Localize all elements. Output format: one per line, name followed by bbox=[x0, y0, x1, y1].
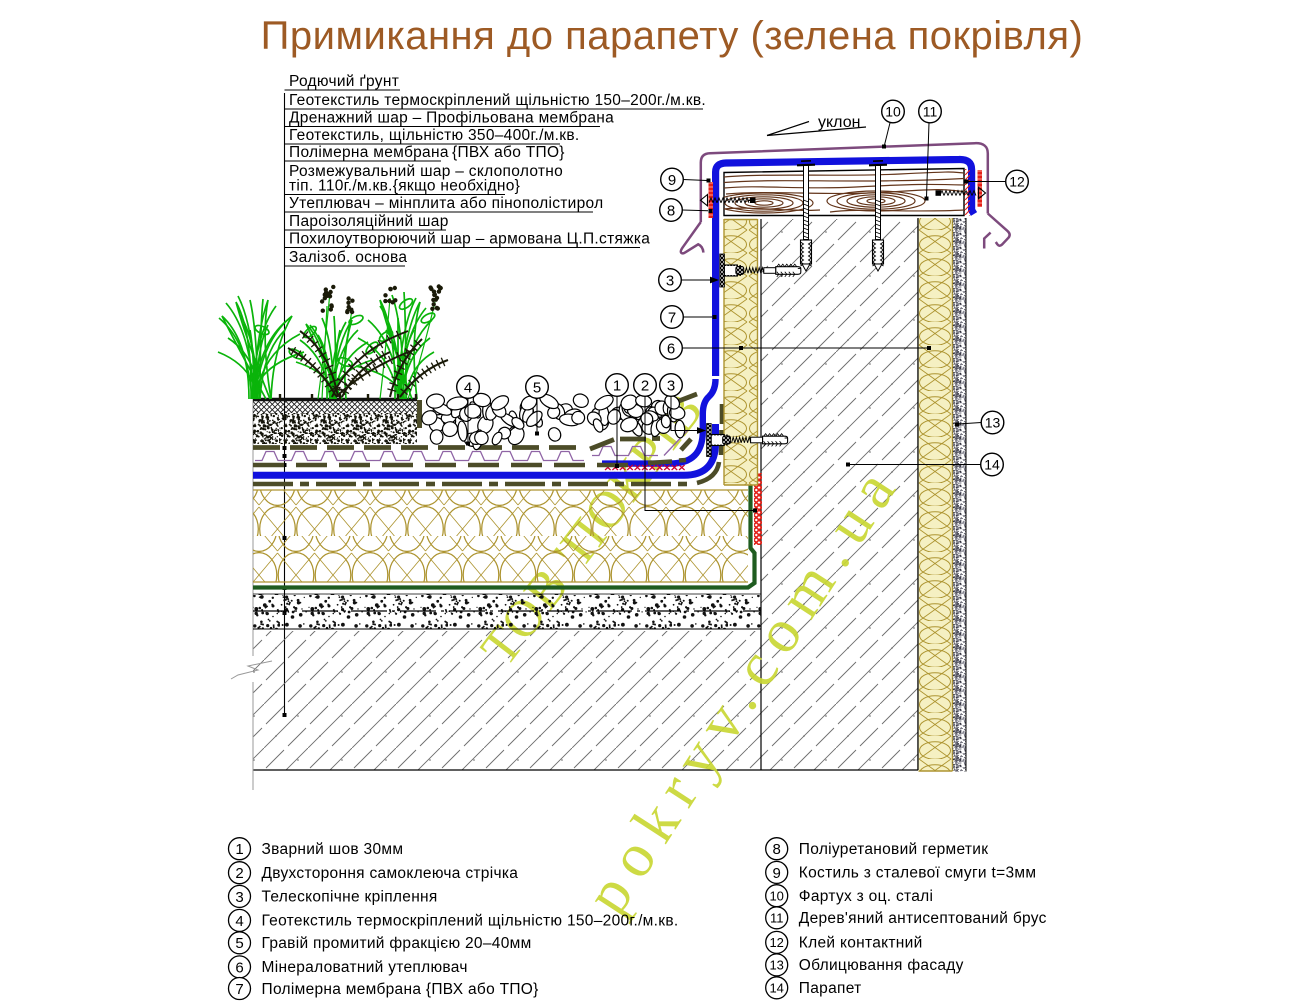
svg-text:11: 11 bbox=[923, 104, 938, 120]
svg-text:Парапет: Парапет bbox=[799, 980, 862, 997]
svg-text:1: 1 bbox=[613, 377, 621, 394]
svg-text:8: 8 bbox=[667, 202, 675, 219]
svg-text:{ПВХ або ТПО}: {ПВХ або ТПО} bbox=[452, 144, 565, 161]
svg-text:7: 7 bbox=[235, 981, 243, 998]
svg-text:6: 6 bbox=[667, 340, 675, 357]
svg-text:Геотекстиль термоскріплений щі: Геотекстиль термоскріплений щільністю 15… bbox=[262, 913, 679, 930]
svg-text:10: 10 bbox=[885, 104, 901, 120]
svg-text:3: 3 bbox=[235, 889, 243, 906]
svg-text:8: 8 bbox=[773, 841, 781, 858]
svg-text:Пароізоляційний шар: Пароізоляційний шар bbox=[289, 213, 449, 230]
svg-text:4: 4 bbox=[235, 913, 243, 930]
svg-text:Геотекстиль термоскріплений щі: Геотекстиль термоскріплений щільністю 15… bbox=[289, 92, 706, 109]
svg-text:2: 2 bbox=[641, 377, 649, 394]
svg-text:Дренажний шар – Профільована м: Дренажний шар – Профільована мембрана bbox=[289, 110, 614, 127]
svg-text:14: 14 bbox=[984, 457, 1000, 473]
svg-text:11: 11 bbox=[770, 911, 784, 926]
svg-text:9: 9 bbox=[668, 172, 676, 189]
svg-text:12: 12 bbox=[1009, 174, 1025, 190]
svg-text:13: 13 bbox=[985, 415, 1001, 431]
svg-text:9: 9 bbox=[773, 865, 781, 882]
svg-text:2: 2 bbox=[235, 865, 243, 882]
svg-text:Примикання до парапету (зелена: Примикання до парапету (зелена покрівля) bbox=[261, 14, 1084, 58]
svg-text:Полімерна мембрана: Полімерна мембрана bbox=[289, 144, 449, 161]
svg-text:14: 14 bbox=[769, 981, 783, 996]
svg-text:3: 3 bbox=[666, 272, 674, 289]
svg-text:Похилоутворюючий шар – армован: Похилоутворюючий шар – армована Ц.П.стяж… bbox=[289, 231, 650, 248]
svg-text:Дерев'яний антисептований брус: Дерев'яний антисептований брус bbox=[799, 910, 1047, 927]
svg-text:Родючий ґрунт: Родючий ґрунт bbox=[289, 73, 399, 90]
svg-text:Полімерна мембрана {ПВХ або ТП: Полімерна мембрана {ПВХ або ТПО} bbox=[262, 981, 539, 998]
svg-text:13: 13 bbox=[769, 958, 783, 973]
svg-text:Фартух з оц. сталі: Фартух з оц. сталі bbox=[799, 888, 933, 905]
svg-text:7: 7 bbox=[668, 309, 676, 326]
svg-text:4: 4 bbox=[464, 379, 472, 396]
svg-text:Гравій промитий фракцією 20–40: Гравій промитий фракцією 20–40мм bbox=[262, 935, 532, 952]
svg-text:12: 12 bbox=[769, 935, 783, 950]
svg-text:6: 6 bbox=[235, 959, 243, 976]
svg-text:уклон: уклон bbox=[818, 114, 860, 131]
svg-text:Зварний шов 30мм: Зварний шов 30мм bbox=[262, 841, 404, 858]
svg-text:5: 5 bbox=[533, 379, 541, 396]
svg-text:Утеплювач – мінплита або піноп: Утеплювач – мінплита або пінополістирол bbox=[289, 195, 603, 212]
svg-text:Облицювання фасаду: Облицювання фасаду bbox=[799, 957, 964, 974]
svg-text:5: 5 bbox=[235, 935, 243, 952]
svg-text:1: 1 bbox=[235, 841, 243, 858]
svg-text:Клей контактний: Клей контактний bbox=[799, 935, 923, 952]
svg-text:Двухстороння самоклеюча стрічк: Двухстороння самоклеюча стрічка bbox=[262, 865, 519, 882]
svg-text:Геотекстиль, щільністю 350–400: Геотекстиль, щільністю 350–400г./м.кв. bbox=[289, 127, 580, 144]
svg-text:3: 3 bbox=[667, 377, 675, 394]
svg-text:10: 10 bbox=[769, 888, 783, 903]
svg-text:Телескопічне кріплення: Телескопічне кріплення bbox=[262, 889, 438, 906]
svg-text:Поліуретановий герметик: Поліуретановий герметик bbox=[799, 841, 989, 858]
svg-text:Мінераловатний утеплювач: Мінераловатний утеплювач bbox=[262, 959, 468, 976]
svg-text:Залізоб. основа: Залізоб. основа bbox=[289, 249, 407, 266]
svg-text:тіп. 110г./м.кв.{якщо необхідн: тіп. 110г./м.кв.{якщо необхідно} bbox=[289, 178, 520, 195]
svg-text:Костиль з сталевої смуги t=3мм: Костиль з сталевої смуги t=3мм bbox=[799, 865, 1037, 882]
